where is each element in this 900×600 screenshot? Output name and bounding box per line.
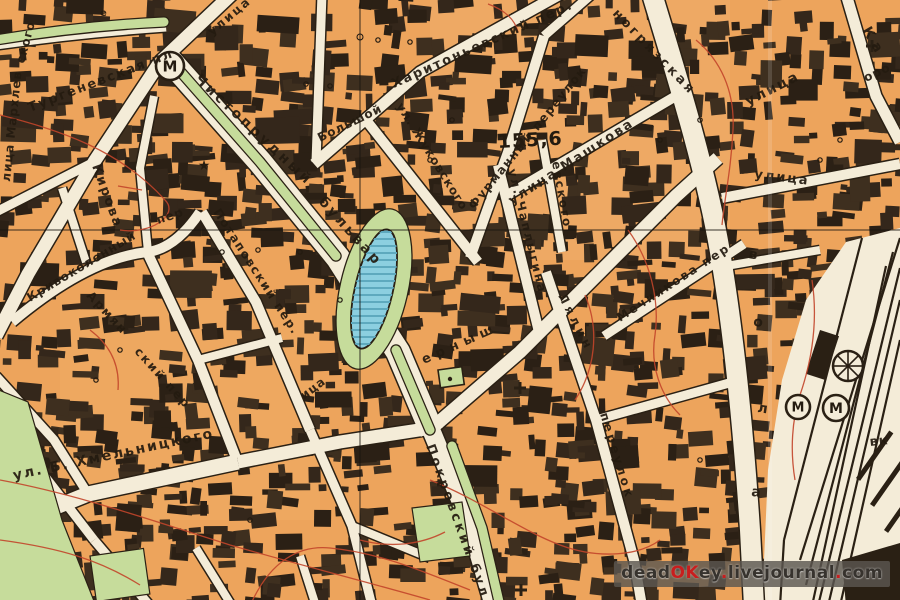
building-footprint-large	[229, 508, 253, 521]
building-footprint	[554, 543, 570, 555]
building-footprint	[690, 60, 699, 74]
building-footprint	[793, 229, 806, 244]
building-footprint	[577, 452, 585, 458]
building-footprint	[507, 306, 527, 325]
building-footprint	[670, 534, 686, 546]
building-footprint	[245, 567, 256, 583]
building-footprint	[117, 41, 128, 58]
building-footprint	[734, 51, 747, 66]
building-footprint	[342, 456, 352, 469]
building-footprint	[664, 415, 682, 430]
building-footprint	[849, 121, 864, 130]
building-footprint-large	[275, 533, 302, 550]
building-footprint	[54, 0, 65, 7]
building-footprint	[551, 493, 569, 504]
building-footprint	[534, 439, 545, 456]
building-footprint	[98, 99, 118, 119]
building-footprint	[705, 454, 730, 467]
building-footprint	[359, 0, 373, 10]
watermark-part: livejournal	[728, 563, 835, 583]
building-footprint	[267, 583, 282, 598]
building-footprint	[647, 241, 662, 259]
building-footprint	[441, 304, 457, 311]
building-footprint	[843, 81, 859, 92]
watermark: deadOKey.livejournal.com	[614, 561, 890, 587]
building-footprint	[240, 44, 253, 63]
building-footprint	[47, 147, 71, 164]
building-footprint	[53, 44, 62, 54]
street-label: е	[100, 8, 107, 19]
building-footprint	[587, 5, 600, 17]
building-footprint	[780, 340, 792, 346]
building-footprint	[691, 311, 709, 319]
building-footprint	[345, 371, 359, 383]
building-footprint	[447, 109, 463, 124]
building-footprint	[315, 285, 325, 293]
building-footprint	[740, 129, 755, 148]
building-footprint	[580, 102, 587, 116]
building-footprint	[641, 537, 650, 543]
building-footprint-large	[170, 270, 212, 298]
building-footprint	[183, 257, 193, 268]
building-footprint	[593, 85, 608, 98]
building-footprint	[606, 0, 613, 8]
building-footprint	[393, 195, 416, 203]
building-footprint	[169, 364, 186, 374]
building-footprint	[120, 464, 145, 472]
building-footprint	[492, 274, 513, 282]
building-footprint	[792, 193, 814, 201]
building-footprint	[578, 175, 590, 193]
building-footprint	[250, 512, 277, 528]
building-footprint	[364, 142, 375, 150]
building-footprint	[56, 329, 71, 347]
building-footprint-large	[428, 245, 449, 265]
building-footprint	[729, 34, 755, 52]
building-footprint	[362, 382, 387, 400]
building-footprint	[200, 501, 207, 516]
building-footprint	[681, 332, 707, 348]
building-footprint	[142, 316, 160, 330]
building-footprint	[255, 66, 272, 78]
building-footprint	[656, 164, 672, 183]
building-footprint	[555, 480, 566, 489]
building-footprint	[160, 567, 178, 586]
building-footprint	[590, 577, 605, 595]
building-footprint	[731, 22, 740, 31]
building-footprint	[350, 415, 365, 422]
building-footprint	[0, 220, 9, 238]
building-footprint	[130, 398, 152, 406]
building-footprint	[278, 464, 286, 477]
building-footprint	[564, 534, 576, 543]
building-footprint	[624, 165, 650, 186]
street-label: а	[751, 484, 762, 501]
building-footprint	[598, 521, 614, 540]
building-footprint	[409, 282, 429, 292]
building-footprint	[433, 184, 441, 194]
building-footprint	[688, 430, 713, 446]
building-footprint	[218, 560, 236, 568]
building-footprint	[378, 397, 393, 417]
building-footprint	[817, 212, 827, 219]
building-footprint	[630, 0, 639, 12]
building-footprint	[452, 130, 463, 140]
street-label: вк	[869, 433, 890, 450]
building-footprint	[95, 429, 118, 445]
building-footprint	[83, 106, 94, 118]
building-footprint	[782, 278, 794, 290]
building-footprint	[790, 54, 802, 69]
building-footprint	[71, 146, 81, 152]
building-footprint	[556, 254, 563, 263]
building-footprint	[253, 437, 270, 449]
building-footprint	[400, 568, 425, 582]
building-footprint	[330, 184, 346, 198]
building-footprint	[794, 10, 813, 23]
building-footprint	[453, 271, 461, 284]
building-footprint	[649, 590, 658, 600]
building-footprint	[81, 43, 108, 59]
building-footprint	[699, 507, 709, 513]
building-footprint	[259, 203, 272, 221]
building-footprint	[646, 548, 662, 562]
landmark-dot	[448, 377, 452, 381]
building-footprint	[506, 577, 528, 586]
building-footprint	[753, 297, 770, 305]
building-footprint	[715, 5, 726, 15]
building-footprint	[532, 89, 543, 104]
building-footprint	[771, 209, 786, 219]
building-footprint	[576, 231, 594, 244]
building-footprint	[408, 154, 416, 164]
paper-fold-line	[768, 0, 772, 600]
building-footprint	[220, 370, 238, 378]
building-footprint	[484, 490, 497, 504]
building-footprint	[508, 537, 523, 556]
building-footprint	[724, 532, 738, 541]
building-footprint	[700, 27, 708, 35]
building-footprint	[360, 402, 367, 417]
building-footprint	[727, 102, 743, 119]
building-footprint	[374, 8, 398, 25]
building-footprint	[589, 244, 597, 260]
building-footprint	[661, 547, 682, 553]
building-footprint	[267, 490, 284, 509]
building-footprint	[230, 495, 253, 505]
building-footprint	[528, 434, 535, 449]
building-footprint-large	[575, 34, 609, 57]
building-footprint	[487, 97, 509, 116]
building-footprint	[849, 107, 861, 117]
building-footprint	[131, 411, 143, 421]
building-footprint	[608, 101, 630, 118]
building-footprint	[418, 293, 443, 312]
building-footprint	[3, 358, 12, 365]
building-footprint	[319, 484, 327, 491]
building-footprint	[359, 508, 374, 526]
building-footprint	[439, 82, 450, 90]
building-footprint	[798, 268, 812, 279]
building-footprint	[324, 177, 341, 185]
metro-letter: М	[792, 401, 805, 416]
watermark-part: dead	[621, 563, 670, 583]
watermark-part: com	[842, 563, 883, 583]
map-scan: ★МММ155,6скоголица МархлевТургеневская п…	[0, 0, 900, 600]
building-footprint	[493, 4, 503, 19]
building-footprint	[438, 566, 450, 575]
building-footprint	[591, 293, 613, 308]
watermark-part-red: .	[835, 563, 842, 583]
watermark-part: ey	[699, 563, 721, 583]
building-footprint	[809, 50, 824, 69]
building-footprint	[683, 507, 698, 521]
building-footprint	[164, 494, 182, 500]
building-footprint-large	[66, 0, 104, 15]
street-label: о	[753, 314, 764, 331]
building-footprint	[564, 391, 578, 401]
building-footprint	[747, 335, 757, 348]
building-footprint	[426, 267, 437, 284]
building-footprint	[634, 367, 653, 380]
building-footprint	[473, 129, 498, 144]
building-footprint	[730, 122, 744, 135]
building-footprint	[255, 79, 279, 95]
building-footprint	[314, 510, 331, 527]
building-footprint	[832, 123, 847, 137]
building-footprint	[820, 22, 834, 40]
building-footprint	[566, 115, 584, 125]
building-footprint	[707, 42, 728, 56]
building-footprint	[833, 65, 851, 79]
building-footprint	[582, 480, 605, 497]
building-footprint	[213, 548, 235, 558]
building-footprint	[657, 541, 670, 548]
building-footprint	[576, 411, 584, 430]
building-footprint	[533, 367, 552, 379]
building-footprint	[292, 77, 314, 84]
building-footprint	[588, 114, 603, 133]
building-footprint	[373, 545, 381, 555]
building-footprint	[79, 316, 100, 330]
building-footprint	[118, 199, 130, 205]
building-footprint	[651, 511, 676, 529]
building-footprint-large	[457, 142, 488, 158]
building-footprint	[629, 190, 654, 204]
building-footprint	[72, 371, 98, 378]
building-footprint	[18, 340, 31, 359]
building-footprint	[710, 97, 726, 115]
building-footprint	[304, 320, 313, 333]
building-footprint-large	[226, 311, 251, 331]
building-footprint	[407, 9, 427, 23]
building-footprint-large	[308, 353, 339, 372]
building-footprint	[693, 528, 711, 539]
building-footprint	[239, 167, 246, 178]
building-footprint	[308, 467, 320, 483]
building-footprint	[107, 59, 122, 65]
building-footprint-large	[172, 142, 193, 163]
building-footprint	[622, 158, 630, 164]
building-footprint	[345, 92, 352, 99]
building-footprint	[137, 494, 153, 506]
building-footprint	[438, 0, 455, 13]
building-footprint	[663, 348, 671, 361]
building-footprint	[519, 495, 538, 508]
building-footprint	[132, 37, 150, 48]
building-footprint-large	[45, 398, 70, 417]
building-footprint	[840, 184, 847, 190]
building-footprint	[717, 21, 730, 37]
building-footprint	[18, 0, 26, 11]
building-footprint	[154, 410, 171, 428]
building-footprint	[502, 398, 520, 408]
watermark-part-red: .	[721, 563, 728, 583]
building-footprint-large	[257, 15, 300, 34]
watermark-part-red: OK	[671, 563, 699, 583]
metro-letter: М	[829, 401, 843, 417]
building-footprint	[638, 382, 659, 389]
building-footprint	[599, 398, 606, 412]
map-canvas: ★МММ155,6скоголица МархлевТургеневская п…	[0, 0, 900, 600]
building-footprint-large	[115, 503, 142, 532]
building-footprint	[497, 527, 503, 534]
building-footprint	[297, 337, 304, 354]
building-footprint	[545, 457, 558, 472]
building-footprint-large	[854, 139, 882, 164]
building-footprint	[296, 304, 307, 313]
building-footprint	[557, 42, 577, 58]
building-footprint	[676, 429, 683, 439]
building-footprint	[551, 403, 567, 417]
building-footprint-large	[181, 174, 210, 192]
building-footprint	[809, 132, 817, 138]
building-footprint	[208, 482, 232, 495]
building-footprint-large	[315, 391, 352, 407]
building-footprint	[449, 588, 458, 595]
building-footprint	[595, 366, 606, 376]
building-footprint	[668, 444, 677, 461]
building-footprint	[545, 590, 553, 600]
building-footprint	[662, 261, 676, 268]
building-footprint	[794, 136, 810, 144]
building-footprint	[63, 425, 76, 443]
building-footprint	[39, 52, 48, 60]
building-footprint	[384, 25, 393, 36]
building-footprint-large	[527, 385, 552, 414]
building-footprint	[788, 117, 805, 127]
star-landmark-icon: ★	[198, 158, 211, 174]
building-footprint	[285, 483, 310, 490]
building-footprint	[700, 470, 719, 476]
building-footprint	[416, 38, 432, 56]
building-footprint	[513, 406, 530, 424]
building-footprint	[660, 358, 680, 378]
building-footprint	[245, 426, 257, 438]
building-footprint	[557, 423, 574, 437]
building-footprint	[452, 72, 459, 81]
building-footprint	[220, 530, 236, 548]
building-footprint	[13, 173, 26, 183]
building-footprint	[410, 99, 433, 113]
building-footprint	[202, 323, 218, 340]
building-footprint	[678, 315, 687, 333]
building-footprint-large	[381, 175, 404, 197]
building-footprint	[244, 207, 256, 219]
building-footprint	[26, 76, 49, 93]
building-footprint	[47, 56, 54, 63]
building-footprint	[492, 513, 505, 528]
building-footprint	[289, 255, 304, 270]
building-footprint	[880, 212, 893, 229]
building-footprint	[608, 72, 617, 81]
building-footprint	[881, 178, 892, 186]
building-footprint	[483, 445, 502, 461]
